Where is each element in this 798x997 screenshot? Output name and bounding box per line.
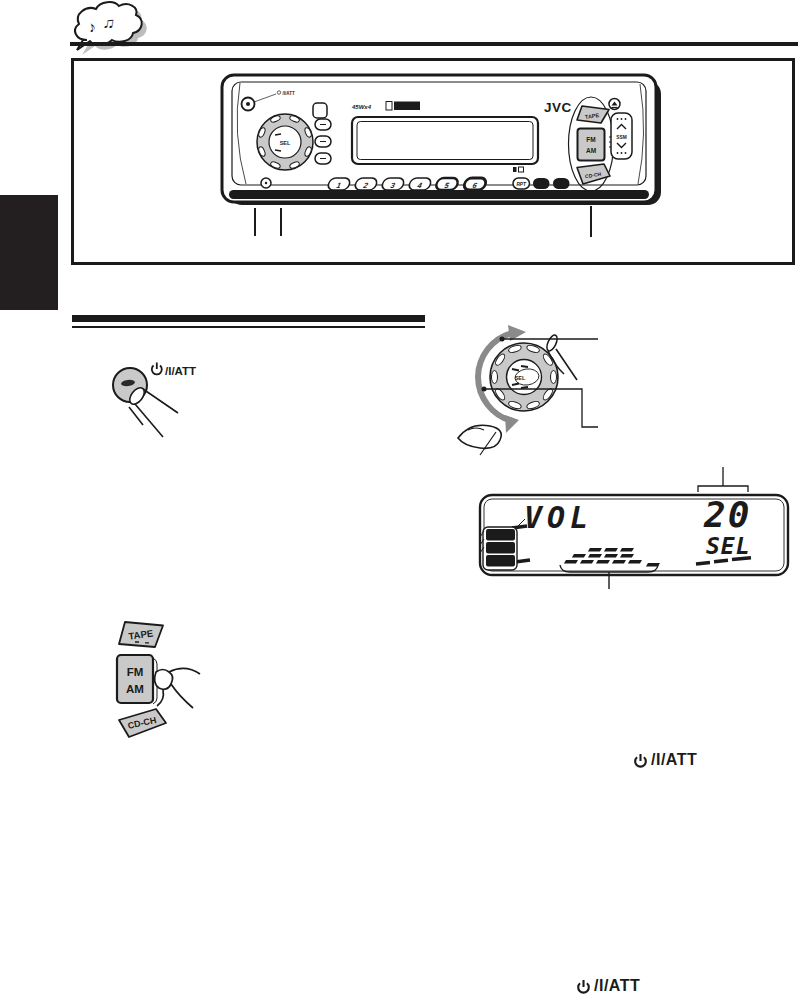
- power-att-reference-mid: /I/ATT: [633, 751, 697, 769]
- beat-label: BEAT: [490, 531, 511, 540]
- top-rule: [70, 42, 798, 46]
- note-icon: ♫: [102, 13, 116, 32]
- unit-bottom-band: [229, 190, 649, 199]
- att-text: /I/ATT: [651, 751, 697, 769]
- power-icon: [576, 978, 591, 995]
- unit-display-window: [352, 117, 538, 164]
- am-label: AM: [586, 147, 596, 154]
- brand-logo: JVC: [544, 100, 572, 115]
- disc-mark: [513, 167, 517, 172]
- power-button-dot: [246, 102, 250, 106]
- power-icon: [152, 363, 162, 375]
- callout-dial: [280, 208, 282, 236]
- section-rule-thin: [72, 326, 425, 328]
- callout-cdch: [590, 206, 592, 237]
- fm-am-button-large: [117, 655, 153, 703]
- lcd-sel-text: SEL: [706, 533, 751, 559]
- power-att-tiny-label: /I/ATT: [283, 91, 295, 96]
- badge-black: [394, 102, 420, 111]
- dial-sel-label: SEL: [280, 140, 291, 146]
- fm-am-button: [578, 129, 605, 161]
- section-rule-thick: [72, 315, 425, 322]
- side-buttons: [315, 119, 331, 164]
- lcd-vol-text: VOL: [524, 500, 593, 535]
- callout-power: [254, 208, 256, 236]
- am-label-large: AM: [126, 683, 144, 695]
- dial-step-illustration: SEL: [450, 322, 600, 455]
- rpt-label: RPT: [516, 182, 527, 187]
- fm-label: FM: [586, 136, 595, 143]
- source-step-illustration: TAPE FM AM CD-CH: [105, 610, 225, 745]
- display-mode-button: [313, 103, 327, 118]
- page-edge-tab: [0, 195, 58, 310]
- rotate-arrow-head-bottom: [505, 415, 519, 433]
- power-att-reference-bottom: /I/ATT: [576, 977, 640, 995]
- rnd-label: RND: [536, 182, 547, 187]
- dial-sel-label-large: SEL: [515, 375, 526, 381]
- badge-small: [386, 102, 392, 111]
- pop-label: POP: [492, 557, 510, 566]
- soft-label: SOFT: [490, 544, 511, 553]
- amp-rating-label: 45Wx4: [351, 104, 372, 110]
- music-notes-icon: ♪ ♫: [66, 0, 152, 56]
- fingertip: [155, 670, 173, 690]
- power-att-label: /I/ATT: [165, 365, 196, 377]
- power-step-illustration: /I/ATT: [85, 345, 215, 445]
- level-callout-bracket: [698, 467, 748, 492]
- angle-button-dot: [265, 182, 267, 184]
- manual-page: ♪ ♫ /I/ATT SEL: [0, 0, 798, 997]
- scm-label: SCM: [556, 182, 568, 187]
- power-icon: [633, 752, 648, 769]
- lcd-volume-value: 20: [703, 494, 751, 535]
- lcd-display-illustration: VOL 20 SEL BEAT SOFT POP: [470, 465, 798, 595]
- ssm-label: SSM: [616, 135, 626, 140]
- fm-label-large: FM: [127, 666, 144, 678]
- att-text: /I/ATT: [594, 977, 640, 995]
- head-unit-illustration: /I/ATT SEL 45Wx4: [220, 72, 670, 214]
